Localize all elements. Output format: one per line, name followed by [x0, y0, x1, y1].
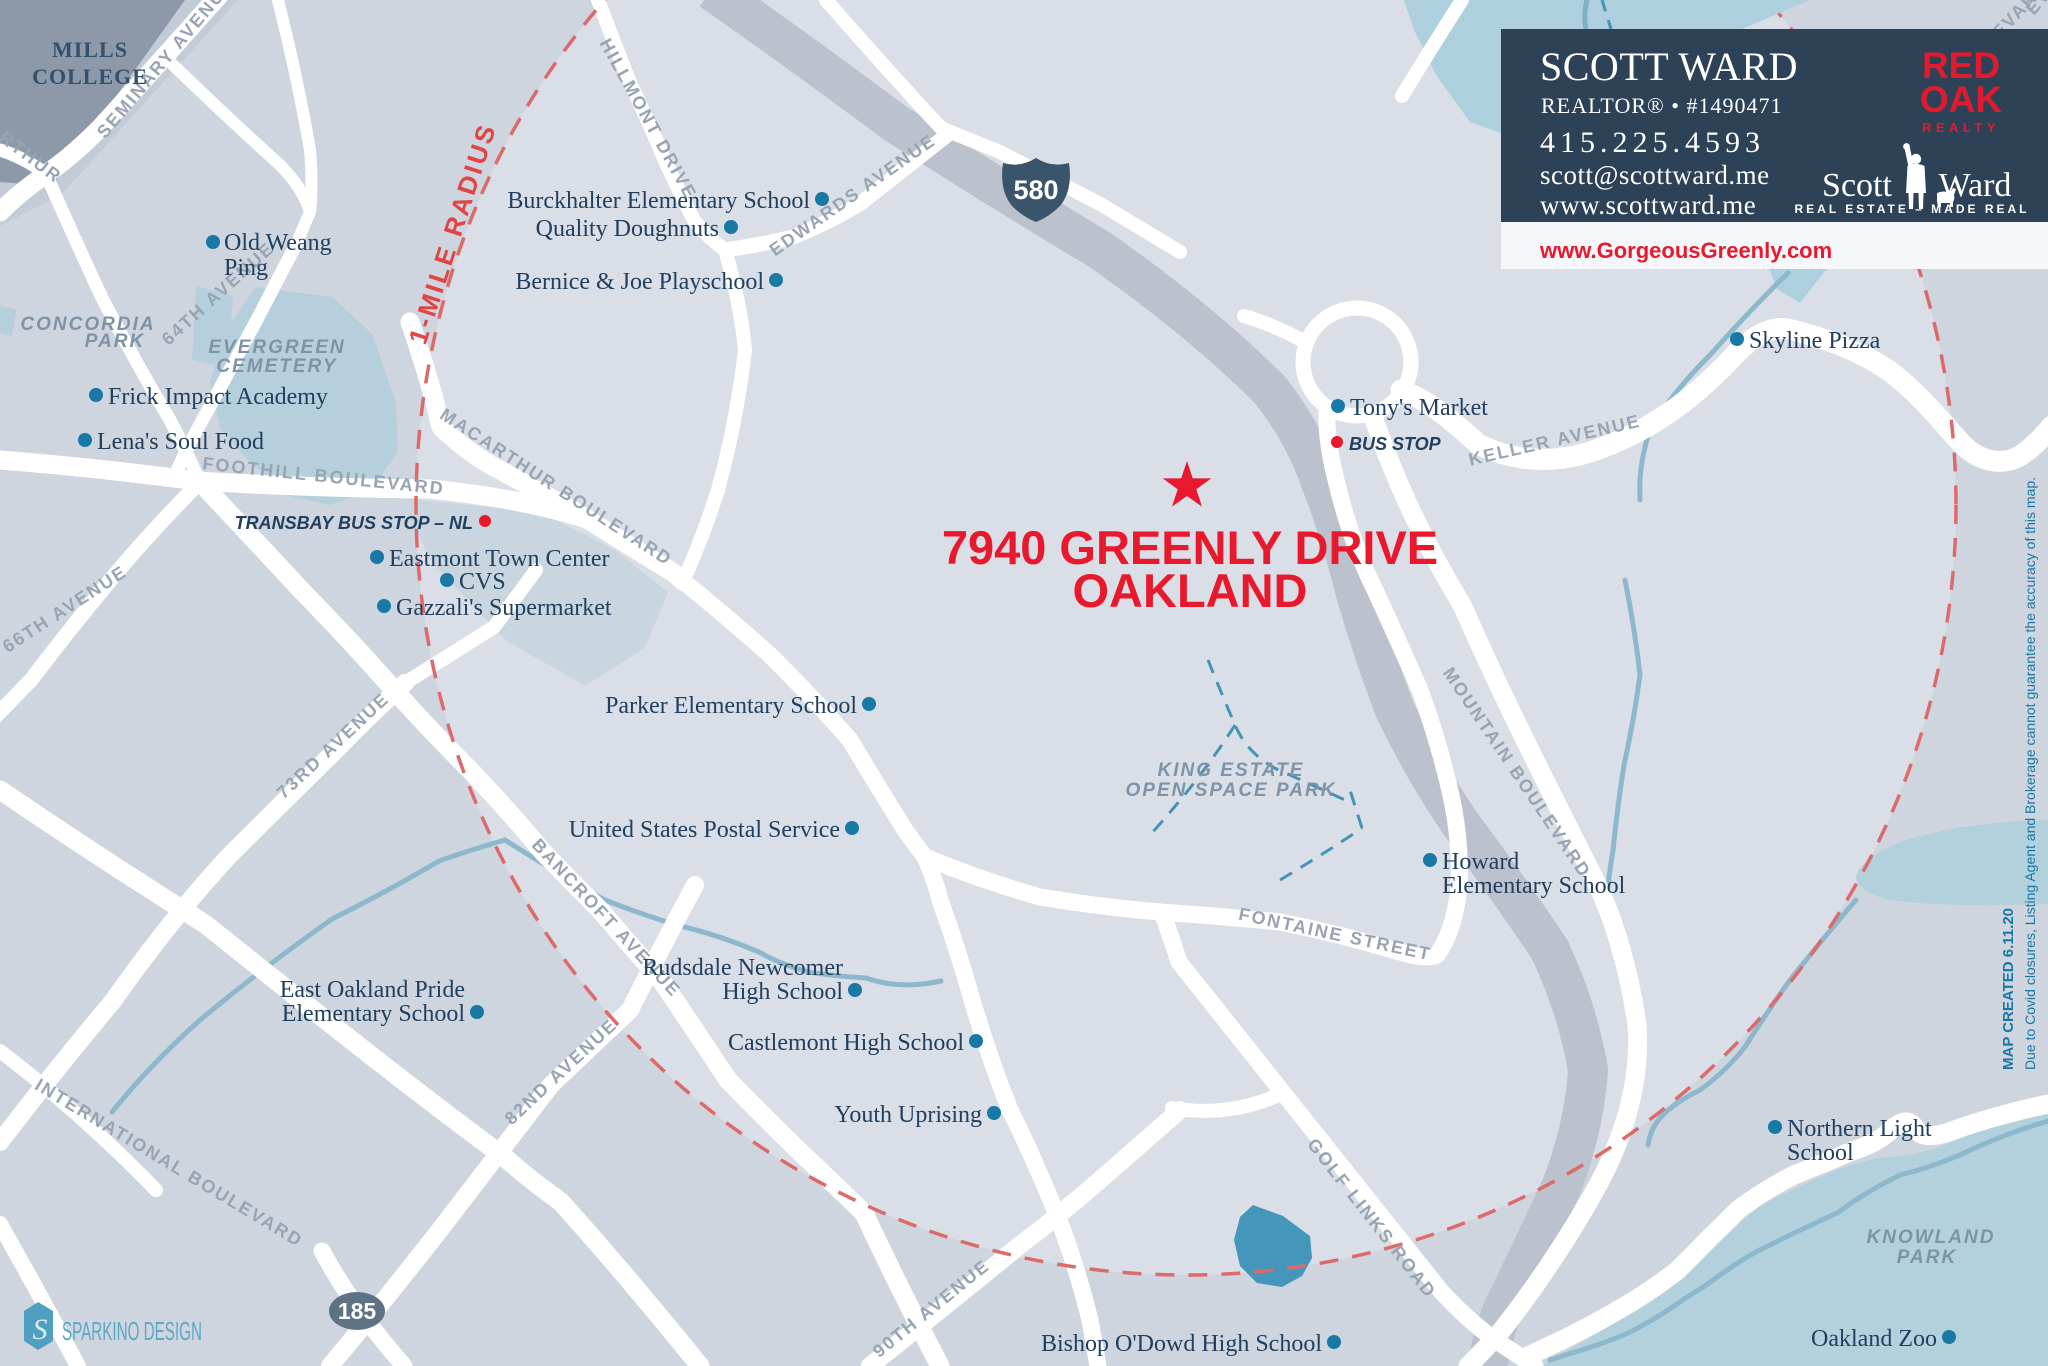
svg-text:Rudsdale Newcomer: Rudsdale Newcomer: [642, 955, 843, 981]
svg-text:TRANSBAY BUS STOP – NL: TRANSBAY BUS STOP – NL: [235, 513, 473, 533]
svg-text:www.GorgeousGreenly.com: www.GorgeousGreenly.com: [1539, 238, 1832, 263]
svg-text:Scott: Scott: [1822, 167, 1892, 204]
svg-text:MAP CREATED 6.11.20: MAP CREATED 6.11.20: [2000, 908, 2017, 1070]
svg-text:Bernice & Joe Playschool: Bernice & Joe Playschool: [515, 269, 764, 295]
svg-text:Burckhalter Elementary School: Burckhalter Elementary School: [507, 188, 810, 214]
svg-text:COLLEGE: COLLEGE: [32, 64, 148, 89]
svg-text:CEMETERY: CEMETERY: [216, 356, 338, 377]
svg-text:Skyline Pizza: Skyline Pizza: [1749, 328, 1881, 354]
svg-text:East Oakland Pride: East Oakland Pride: [280, 977, 465, 1003]
svg-text:580: 580: [1013, 175, 1058, 205]
svg-text:OPEN SPACE PARK: OPEN SPACE PARK: [1126, 780, 1337, 801]
svg-text:Howard: Howard: [1442, 849, 1519, 875]
svg-text:Quality Doughnuts: Quality Doughnuts: [536, 216, 719, 242]
svg-text:185: 185: [338, 1298, 377, 1324]
svg-text:Bishop O'Dowd High School: Bishop O'Dowd High School: [1041, 1331, 1322, 1357]
svg-text:Youth Uprising: Youth Uprising: [834, 1102, 982, 1128]
svg-text:REAL ESTATE – MADE REAL: REAL ESTATE – MADE REAL: [1794, 202, 2029, 216]
svg-text:Parker Elementary School: Parker Elementary School: [605, 693, 857, 719]
svg-text:Due to Covid closures, Listing: Due to Covid closures, Listing Agent and…: [2022, 477, 2038, 1070]
svg-text:High School: High School: [722, 979, 843, 1005]
svg-text:Lena's Soul Food: Lena's Soul Food: [97, 429, 264, 455]
svg-text:REALTOR® • #1490471: REALTOR® • #1490471: [1541, 93, 1782, 118]
svg-text:Ping: Ping: [224, 255, 268, 281]
svg-text:MILLS: MILLS: [52, 37, 128, 62]
svg-text:Frick Impact Academy: Frick Impact Academy: [108, 384, 328, 410]
svg-text:S: S: [33, 1313, 48, 1346]
svg-text:CVS: CVS: [459, 569, 506, 595]
svg-text:Northern Light: Northern Light: [1787, 1116, 1932, 1142]
svg-text:OAK: OAK: [1920, 79, 2003, 120]
svg-text:Oakland Zoo: Oakland Zoo: [1811, 1326, 1937, 1352]
svg-text:KING ESTATE: KING ESTATE: [1158, 760, 1305, 781]
svg-text:Castlemont High School: Castlemont High School: [728, 1030, 964, 1056]
svg-text:Gazzali's Supermarket: Gazzali's Supermarket: [396, 595, 612, 621]
svg-text:PARK: PARK: [85, 331, 145, 352]
svg-text:United States Postal Service: United States Postal Service: [569, 817, 840, 843]
svg-text:REALTY: REALTY: [1922, 120, 2000, 135]
svg-text:Elementary School: Elementary School: [1442, 873, 1626, 899]
svg-text:Tony's Market: Tony's Market: [1350, 395, 1488, 421]
svg-text:SPARKINO DESIGN: SPARKINO DESIGN: [62, 1316, 202, 1346]
svg-text:Old Weang: Old Weang: [224, 230, 332, 256]
svg-text:OAKLAND: OAKLAND: [1073, 564, 1308, 617]
svg-text:scott@scottward.me: scott@scottward.me: [1540, 160, 1770, 190]
svg-text:School: School: [1787, 1140, 1854, 1166]
svg-text:SCOTT WARD: SCOTT WARD: [1540, 44, 1798, 89]
svg-text:Elementary School: Elementary School: [282, 1001, 466, 1027]
svg-text:www.scottward.me: www.scottward.me: [1540, 190, 1756, 220]
svg-text:BUS STOP: BUS STOP: [1349, 434, 1442, 454]
svg-text:415.225.4593: 415.225.4593: [1540, 126, 1765, 159]
svg-text:PARK: PARK: [1897, 1247, 1957, 1268]
svg-text:KNOWLAND: KNOWLAND: [1867, 1227, 1996, 1248]
svg-text:EVERGREEN: EVERGREEN: [208, 337, 345, 358]
